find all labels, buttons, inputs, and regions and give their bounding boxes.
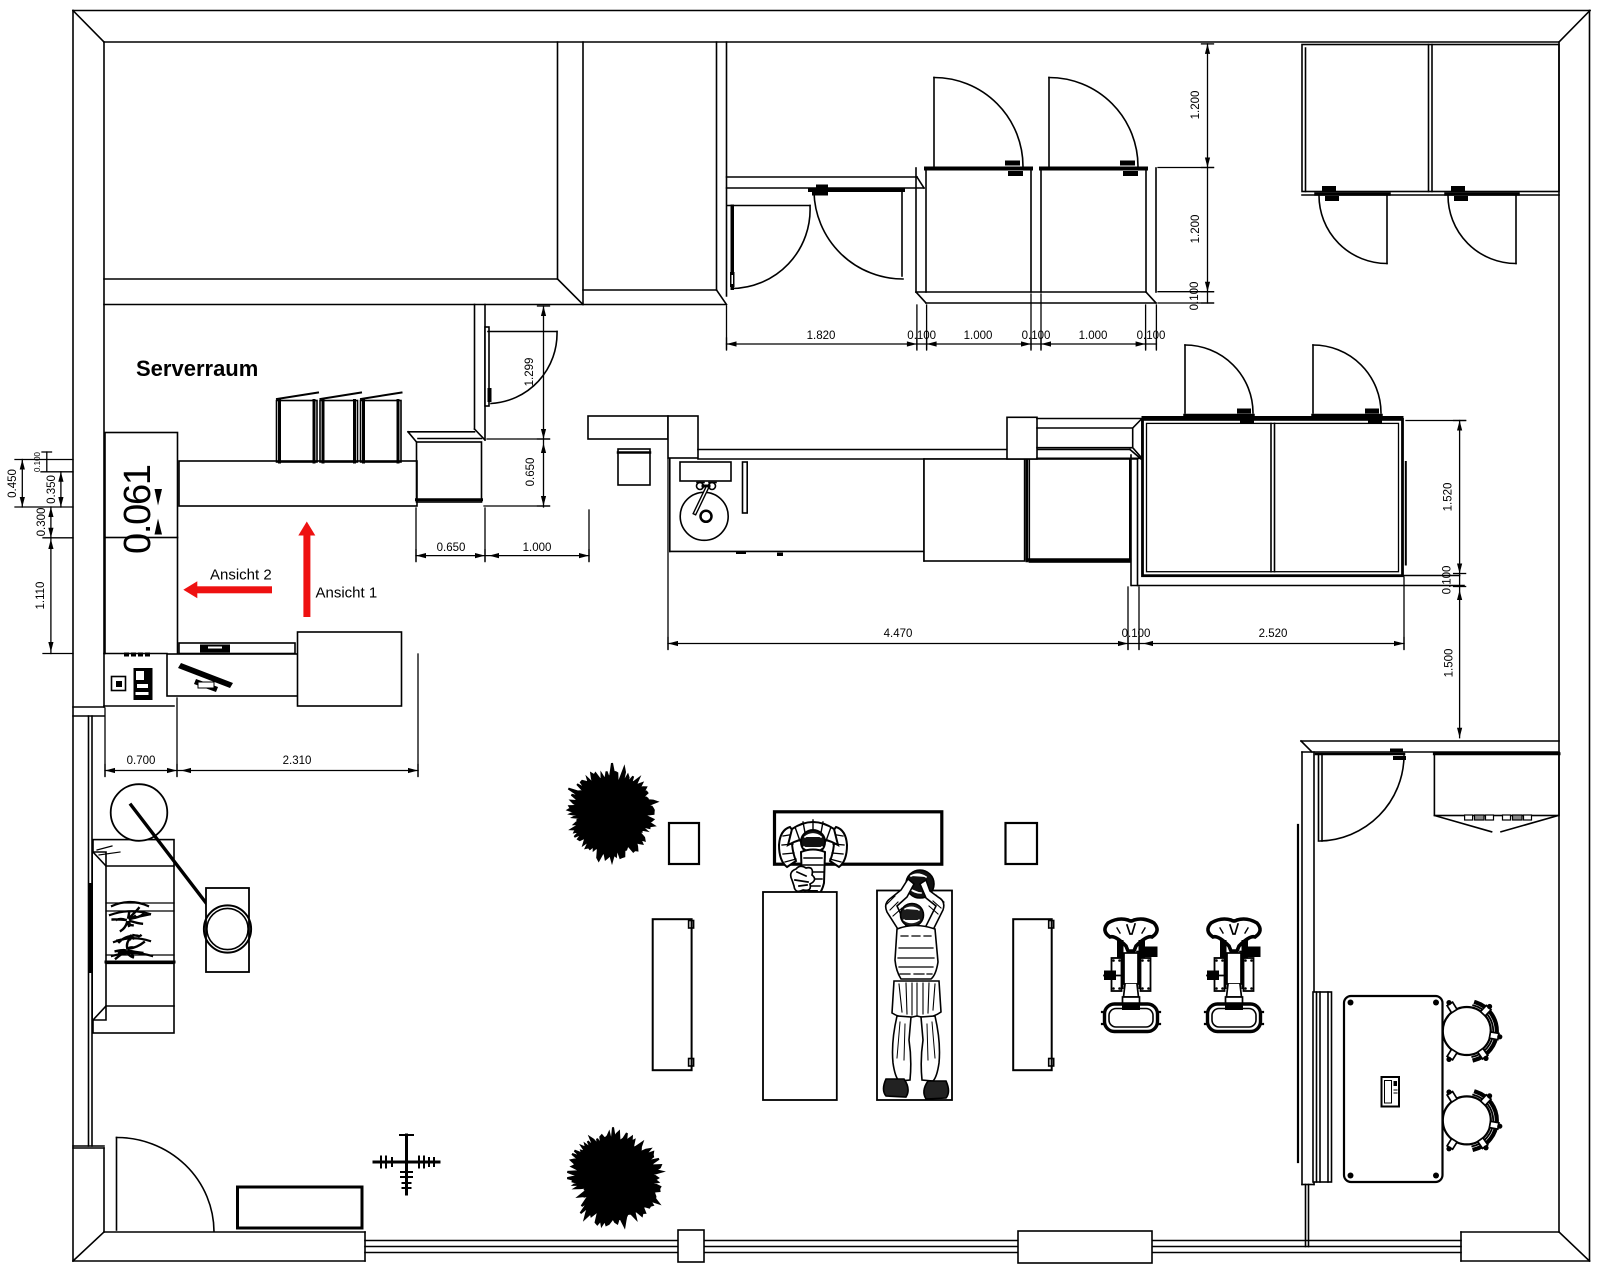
svg-text:0.100: 0.100	[1442, 566, 1454, 595]
svg-text:1.000: 1.000	[523, 542, 552, 554]
svg-text:4.470: 4.470	[884, 628, 913, 640]
svg-text:1.110: 1.110	[35, 582, 47, 610]
svg-text:0.100: 0.100	[1122, 628, 1151, 640]
svg-text:0.100: 0.100	[33, 451, 42, 472]
svg-text:1.500: 1.500	[1444, 649, 1456, 678]
svg-text:1.299: 1.299	[524, 358, 536, 387]
svg-text:0.061: 0.061	[117, 464, 159, 554]
svg-text:1.200: 1.200	[1190, 215, 1202, 244]
svg-text:0.450: 0.450	[7, 469, 19, 498]
svg-text:0.100: 0.100	[1137, 330, 1166, 342]
svg-text:Ansicht 2: Ansicht 2	[210, 567, 272, 584]
svg-text:2.520: 2.520	[1259, 628, 1288, 640]
svg-text:1.820: 1.820	[807, 330, 836, 342]
svg-text:1.000: 1.000	[964, 330, 993, 342]
svg-text:0.100: 0.100	[1022, 330, 1051, 342]
svg-text:2.310: 2.310	[283, 755, 312, 767]
svg-text:0.350: 0.350	[46, 475, 58, 504]
svg-text:1.000: 1.000	[1079, 330, 1108, 342]
svg-text:0.650: 0.650	[437, 542, 466, 554]
svg-text:0.300: 0.300	[36, 508, 48, 537]
svg-text:0.100: 0.100	[907, 330, 936, 342]
svg-text:0.700: 0.700	[127, 755, 156, 767]
svg-text:1.520: 1.520	[1443, 483, 1455, 512]
svg-text:1.200: 1.200	[1190, 91, 1202, 120]
svg-text:Serverraum: Serverraum	[136, 356, 258, 381]
svg-text:Ansicht 1: Ansicht 1	[316, 585, 378, 602]
svg-text:0.100: 0.100	[1189, 282, 1201, 311]
svg-text:0.650: 0.650	[525, 458, 537, 487]
